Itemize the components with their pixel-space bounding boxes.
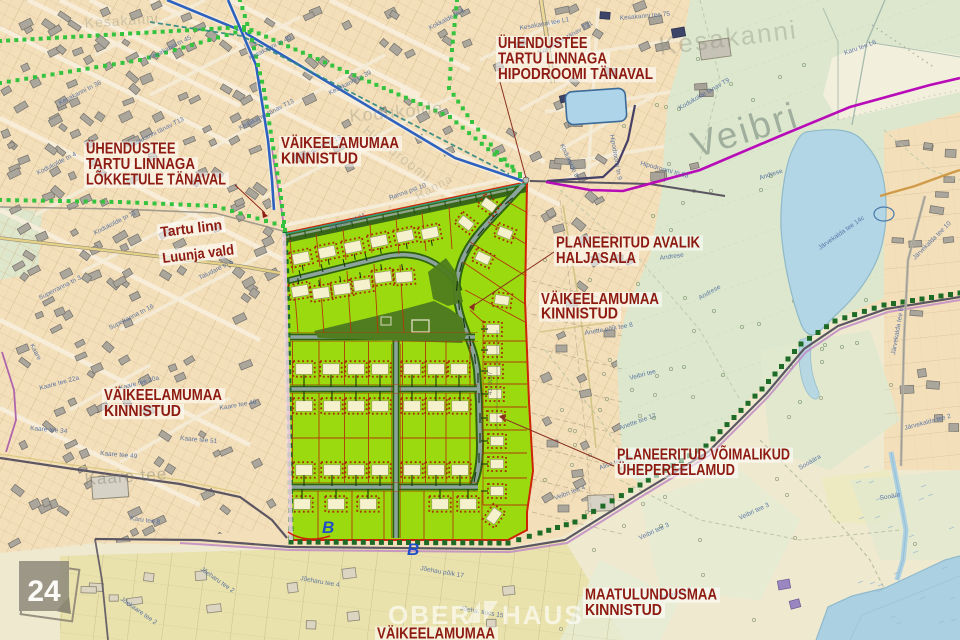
svg-text:TARTU LINNAGA: TARTU LINNAGA bbox=[498, 51, 607, 68]
svg-text:TARTU LINNAGA: TARTU LINNAGA bbox=[86, 156, 195, 173]
svg-text:HAUS: HAUS bbox=[502, 600, 584, 630]
svg-text:B: B bbox=[322, 518, 334, 537]
svg-text:PLANEERITUD AVALIK: PLANEERITUD AVALIK bbox=[556, 235, 701, 252]
svg-text:24: 24 bbox=[27, 575, 61, 608]
svg-text:KINNISTUD: KINNISTUD bbox=[104, 403, 181, 420]
svg-text:PLANEERITUD VÕIMALIKUD: PLANEERITUD VÕIMALIKUD bbox=[617, 446, 790, 464]
svg-text:KINNISTUD: KINNISTUD bbox=[541, 306, 618, 323]
svg-text:ÜHENDUSTEE: ÜHENDUSTEE bbox=[498, 35, 588, 52]
svg-text:LÕKKETULE TÄNAVAL: LÕKKETULE TÄNAVAL bbox=[86, 171, 226, 189]
svg-text:KINNISTUD: KINNISTUD bbox=[585, 602, 662, 619]
svg-text:4370097: 4370097 bbox=[488, 371, 494, 395]
svg-text:HIPODROOMI TÄNAVAL: HIPODROOMI TÄNAVAL bbox=[498, 66, 653, 83]
svg-text:VÄIKEELAMUMAA: VÄIKEELAMUMAA bbox=[104, 387, 222, 404]
svg-text:HALJASALA: HALJASALA bbox=[556, 250, 636, 267]
svg-text:B: B bbox=[407, 540, 419, 559]
svg-text:OBER: OBER bbox=[388, 600, 471, 630]
svg-text:MAATULUNDUSMAA: MAATULUNDUSMAA bbox=[585, 587, 717, 604]
svg-text:VÄIKEELAMUMAA: VÄIKEELAMUMAA bbox=[281, 135, 399, 152]
svg-text:ÜHEPEREELAMUD: ÜHEPEREELAMUD bbox=[617, 462, 735, 479]
svg-text:ÜHENDUSTEE: ÜHENDUSTEE bbox=[86, 141, 176, 158]
svg-text:KINNISTUD: KINNISTUD bbox=[281, 151, 358, 168]
